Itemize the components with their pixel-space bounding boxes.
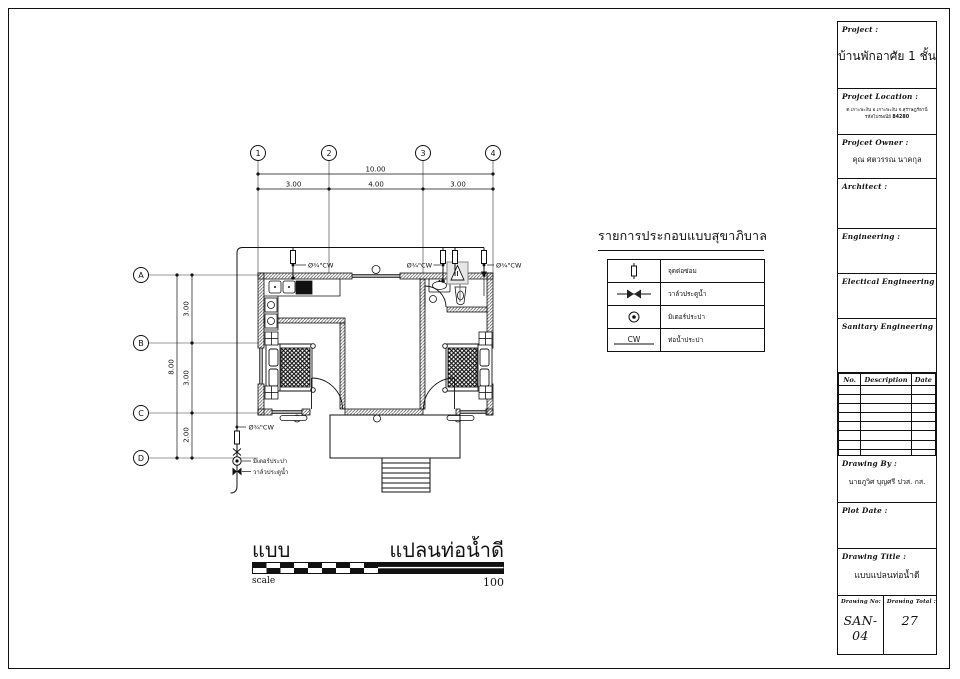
rev-col-no: No. bbox=[839, 374, 861, 386]
drawing-no-value: SAN-04 bbox=[838, 613, 883, 643]
cold-water-pipe-symbol: CW bbox=[612, 331, 656, 349]
legend-row: จุดต่อซ่อม bbox=[608, 260, 764, 282]
dim-width-3: 3.00 bbox=[450, 181, 466, 189]
grid-lines bbox=[149, 161, 494, 459]
drawing-sheet: 10.00 3.00 4.00 3.00 8.00 3.00 3.00 2.00… bbox=[0, 0, 960, 679]
owner-label: Projcet Owner : bbox=[838, 135, 936, 147]
stove bbox=[296, 281, 312, 294]
tb-drawing-title: Drawing Title : แบบแปลนท่อน้ำดี bbox=[838, 549, 936, 596]
drawing-title-value: แบบแปลนท่อน้ำดี bbox=[838, 568, 936, 582]
tb-number-total: Drawing No: SAN-04 Drawing Total : 27 bbox=[838, 596, 936, 654]
legend-table: จุดต่อซ่อม วาล์วประตูน้ำ bbox=[607, 259, 765, 352]
legend-label: จุดต่อซ่อม bbox=[660, 260, 764, 282]
architect-label: Architect : bbox=[838, 179, 936, 191]
bed-right bbox=[443, 344, 492, 393]
location-postcode: 84280 bbox=[892, 115, 909, 120]
pipe-size-label: Ø¾"CW bbox=[308, 262, 334, 270]
legend-row: วาล์วประตูน้ำ bbox=[608, 282, 764, 305]
gate-valve bbox=[233, 468, 238, 476]
drawing-by-value: นายภูวิศ บุญศรี ปวส. กส. bbox=[838, 477, 936, 488]
cw-symbol-text: CW bbox=[628, 335, 641, 344]
pipe-size-label: Ø¾"CW bbox=[496, 262, 522, 270]
scale-label: scale bbox=[252, 576, 275, 589]
sanitary-engineering-label: Sanitary Engineering : bbox=[838, 319, 936, 331]
svg-text:1: 1 bbox=[255, 149, 260, 158]
legend-row: มิเตอร์ประปา bbox=[608, 305, 764, 328]
legend-label: ท่อน้ำประปา bbox=[660, 329, 764, 351]
tb-sanitary: Sanitary Engineering : bbox=[838, 319, 936, 373]
location-value: ต.เกาะพะงัน อ.เกาะพะงัน จ.สุราษฎร์ธานี ร… bbox=[838, 107, 936, 122]
sheet-name-left: แบบ bbox=[252, 540, 290, 560]
svg-text:A: A bbox=[138, 271, 144, 280]
drawing-title-label: Drawing Title : bbox=[838, 549, 936, 561]
engineering-label: Engineering : bbox=[838, 229, 936, 241]
rev-row bbox=[839, 404, 936, 413]
tb-electrical: Electical Engineering : bbox=[838, 274, 936, 319]
rev-row bbox=[839, 449, 936, 456]
tb-drawing-by: Drawing By : นายภูวิศ บุญศรี ปวส. กส. bbox=[838, 456, 936, 503]
gate-valve-symbol bbox=[612, 285, 656, 303]
legend: รายการประกอบแบบสุขาภิบาล จุดต่อซ่อม bbox=[598, 226, 764, 352]
tb-architect: Architect : bbox=[838, 179, 936, 229]
legend-row: CW ท่อน้ำประปา bbox=[608, 328, 764, 351]
svg-text:3: 3 bbox=[420, 149, 425, 158]
svg-text:4: 4 bbox=[490, 149, 495, 158]
svg-text:B: B bbox=[138, 339, 144, 348]
tb-location: Projcet Location : ต.เกาะพะงัน อ.เกาะพะง… bbox=[838, 89, 936, 135]
dim-height-1: 3.00 bbox=[183, 301, 191, 317]
dimension-ticks bbox=[175, 172, 494, 459]
dim-height-3: 2.00 bbox=[183, 427, 191, 443]
svg-text:D: D bbox=[138, 454, 144, 463]
gate-valve-label: วาล์วประตูน้ำ bbox=[253, 466, 288, 476]
dim-width-1: 3.00 bbox=[286, 181, 302, 189]
drawing-total-value: 27 bbox=[884, 613, 936, 628]
legend-label: วาล์วประตูน้ำ bbox=[660, 283, 764, 305]
rev-col-description: Description bbox=[861, 374, 911, 386]
project-value: บ้านพักอาศัย 1 ชั้น bbox=[838, 47, 936, 66]
tb-owner: Projcet Owner : คุณ ศตวรรณ นาคกุล bbox=[838, 135, 936, 179]
pipe-size-label: Ø¾"CW bbox=[249, 424, 275, 432]
rev-row bbox=[839, 440, 936, 449]
tb-plot-date: Plot Date : bbox=[838, 503, 936, 549]
tb-drawing-total: Drawing Total : 27 bbox=[884, 596, 936, 654]
porch bbox=[330, 415, 460, 458]
rev-col-date: Date bbox=[911, 374, 935, 386]
location-line1: ต.เกาะพะงัน อ.เกาะพะงัน จ.สุราษฎร์ธานี bbox=[846, 108, 927, 113]
water-meter-symbol bbox=[612, 308, 656, 326]
doors bbox=[312, 286, 455, 409]
scale-value: 100 bbox=[483, 576, 504, 589]
revision-table: No. Description Date bbox=[838, 373, 936, 456]
rev-row bbox=[839, 422, 936, 431]
water-meter-label: มิเตอร์ประปา bbox=[253, 457, 287, 465]
pipe-size-label: Ø¾"CW bbox=[407, 262, 433, 270]
dim-total-height: 8.00 bbox=[168, 359, 176, 375]
pipe-riser-symbol bbox=[612, 262, 656, 280]
title-block: Project : บ้านพักอาศัย 1 ชั้น Projcet Lo… bbox=[837, 21, 937, 655]
rev-row bbox=[839, 413, 936, 422]
bed-left bbox=[266, 344, 315, 393]
drawing-by-label: Drawing By : bbox=[838, 456, 936, 468]
stairs bbox=[382, 458, 430, 492]
drawing-total-label: Drawing Total : bbox=[884, 596, 936, 605]
location-label: Projcet Location : bbox=[838, 89, 936, 101]
dim-height-2: 3.00 bbox=[183, 370, 191, 386]
electrical-engineering-label: Electical Engineering : bbox=[838, 274, 936, 286]
sheet-name-right: แปลนท่อน้ำดี bbox=[389, 540, 504, 560]
project-label: Project : bbox=[838, 22, 936, 34]
tb-project: Project : บ้านพักอาศัย 1 ชั้น bbox=[838, 22, 936, 89]
rev-row bbox=[839, 395, 936, 404]
legend-label: มิเตอร์ประปา bbox=[660, 306, 764, 328]
plot-date-label: Plot Date : bbox=[838, 503, 936, 515]
owner-value: คุณ ศตวรรณ นาคกุล bbox=[838, 154, 936, 166]
scale-bar bbox=[252, 562, 504, 574]
drawing-no-label: Drawing No: bbox=[838, 596, 883, 605]
rev-row bbox=[839, 431, 936, 440]
grid-bubble-labels: 1 2 3 4 A B C D bbox=[138, 149, 496, 463]
rev-row bbox=[839, 386, 936, 395]
tb-engineering: Engineering : bbox=[838, 229, 936, 274]
svg-text:2: 2 bbox=[326, 149, 331, 158]
tb-drawing-no: Drawing No: SAN-04 bbox=[838, 596, 884, 654]
tb-revision-table: No. Description Date bbox=[838, 373, 936, 456]
location-line2: รหัสไปรษณีย์ bbox=[865, 115, 891, 120]
dim-width-2: 4.00 bbox=[368, 181, 384, 189]
sheet-title-footer: แบบ แปลนท่อน้ำดี scale 100 bbox=[252, 540, 504, 589]
legend-title: รายการประกอบแบบสุขาภิบาล bbox=[598, 226, 764, 251]
svg-text:C: C bbox=[138, 409, 144, 418]
dim-total-width: 10.00 bbox=[365, 166, 385, 174]
